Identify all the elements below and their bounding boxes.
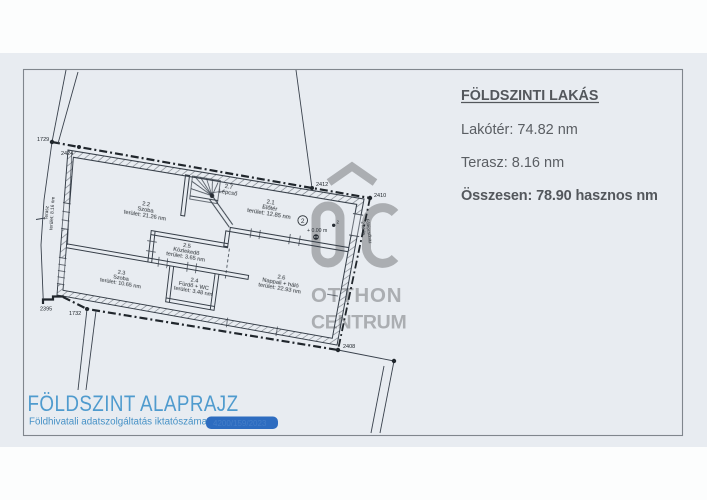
svg-text:+ 0.00 m: + 0.00 m [307, 228, 327, 234]
svg-text:Összesen: 78.90 hasznos nm: Összesen: 78.90 hasznos nm [461, 187, 658, 204]
svg-text:Lakótér: 74.82 nm: Lakótér: 74.82 nm [461, 122, 578, 138]
svg-text:Földhivatali adatszolgáltatás: Földhivatali adatszolgáltatás iktatószám… [29, 417, 210, 428]
svg-text:2 lakás: 2 lakás [360, 221, 367, 236]
svg-text:2408: 2408 [343, 344, 355, 350]
svg-text:4200/159/2023: 4200/159/2023 [213, 419, 267, 428]
svg-text:2410: 2410 [374, 193, 386, 199]
svg-text:1729: 1729 [37, 137, 49, 143]
svg-text:FÖLDSZINTI LAKÁS: FÖLDSZINTI LAKÁS [461, 87, 598, 104]
svg-text:2395: 2395 [40, 307, 52, 313]
svg-text:Terasz: 8.16 nm: Terasz: 8.16 nm [461, 155, 564, 171]
svg-text:1732: 1732 [69, 311, 81, 317]
svg-text:2412: 2412 [316, 182, 328, 188]
svg-text:FÖLDSZINT ALAPRAJZ: FÖLDSZINT ALAPRAJZ [28, 392, 239, 417]
svg-text:terület: 8.16 nm: terület: 8.16 nm [48, 196, 56, 230]
svg-text:2: 2 [301, 218, 305, 225]
svg-text:2424: 2424 [61, 151, 73, 157]
svg-text:2: 2 [337, 220, 340, 225]
